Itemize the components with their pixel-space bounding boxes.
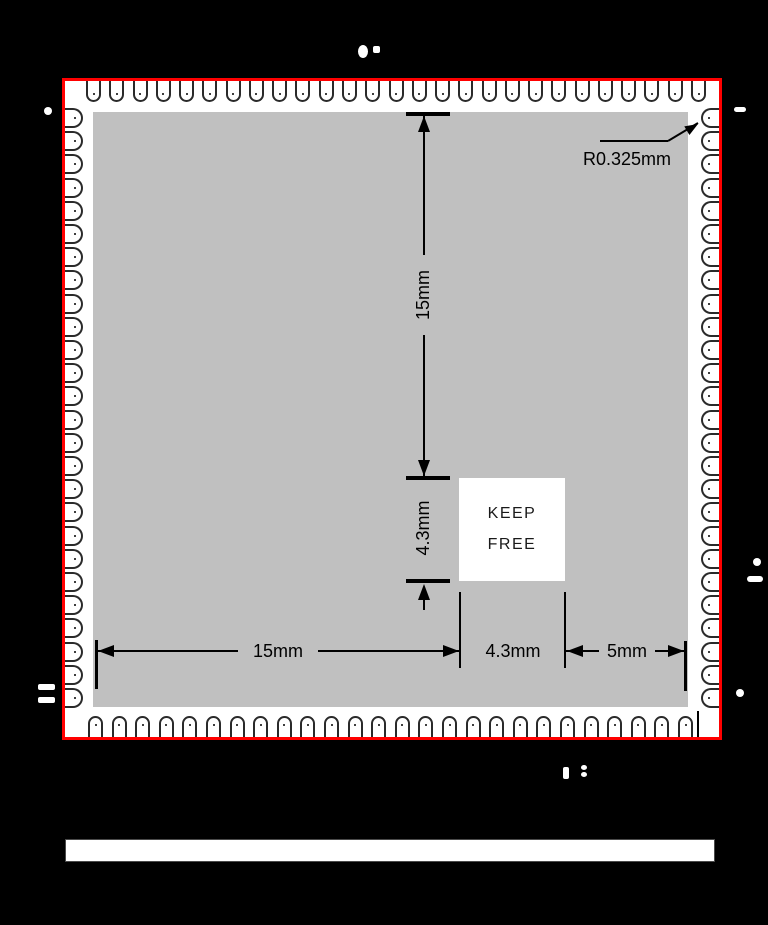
dim-h5-right-tick: [684, 641, 687, 691]
keep-free-zone: KEEP FREE: [459, 478, 565, 581]
footer-blank-bar: [65, 839, 715, 862]
pad-center-dot: [74, 279, 76, 281]
castellated-pad: [701, 108, 719, 128]
pad-center-dot: [708, 372, 710, 374]
pad-center-dot: [74, 488, 76, 490]
castellated-pad: [253, 716, 268, 737]
castellated-pad: [701, 502, 719, 522]
castellated-pad: [435, 81, 450, 102]
stray-mark: [747, 576, 763, 582]
pad-center-dot: [139, 93, 141, 95]
dim-h43-label: 4.3mm: [473, 641, 553, 661]
pad-center-dot: [708, 488, 710, 490]
castellated-pad: [389, 81, 404, 102]
castellated-pad: [202, 81, 217, 102]
castellated-pad: [277, 716, 292, 737]
pad-center-dot: [395, 93, 397, 95]
castellated-pad: [701, 386, 719, 406]
pad-center-dot: [74, 395, 76, 397]
castellated-pad: [560, 716, 575, 737]
castellated-pad: [412, 81, 427, 102]
pad-center-dot: [74, 651, 76, 653]
pad-center-dot: [74, 256, 76, 258]
castellated-pad: [701, 340, 719, 360]
castellated-pad: [319, 81, 334, 102]
castellated-pad: [528, 81, 543, 102]
castellated-pad: [365, 81, 380, 102]
pad-center-dot: [74, 604, 76, 606]
castellated-pad: [182, 716, 197, 737]
castellated-pad: [112, 716, 127, 737]
pad-center-dot: [708, 279, 710, 281]
pad-center-dot: [279, 93, 281, 95]
castellated-pad: [701, 224, 719, 244]
castellated-pad: [551, 81, 566, 102]
castellated-pad: [65, 178, 83, 198]
castellated-pad: [65, 294, 83, 314]
pad-center-dot: [74, 303, 76, 305]
pad-center-dot: [449, 724, 451, 726]
castellated-pad: [230, 716, 245, 737]
castellated-pad: [272, 81, 287, 102]
castellated-pad: [513, 716, 528, 737]
pad-center-dot: [708, 163, 710, 165]
castellated-pad: [701, 572, 719, 592]
pad-center-dot: [74, 349, 76, 351]
pad-center-dot: [708, 511, 710, 513]
pad-center-dot: [74, 581, 76, 583]
pad-center-dot: [604, 93, 606, 95]
castellated-pad: [348, 716, 363, 737]
castellated-pad: [701, 433, 719, 453]
dim-v15-arrow-down: [418, 460, 430, 476]
pad-center-dot: [708, 349, 710, 351]
pad-radius-label: R0.325mm: [583, 149, 671, 170]
castellated-pad: [295, 81, 310, 102]
pad-center-dot: [116, 93, 118, 95]
dim-h15-arrow-left: [98, 645, 114, 657]
pad-center-dot: [232, 93, 234, 95]
pad-center-dot: [74, 210, 76, 212]
pad-center-dot: [708, 558, 710, 560]
pad-center-dot: [93, 93, 95, 95]
pad-center-dot: [74, 372, 76, 374]
pad-center-dot: [74, 117, 76, 119]
pad-center-dot: [628, 93, 630, 95]
pad-center-dot: [378, 724, 380, 726]
pad-center-dot: [74, 465, 76, 467]
pad-center-dot: [74, 326, 76, 328]
pad-center-dot: [186, 93, 188, 95]
pad-center-dot: [708, 140, 710, 142]
pad-center-dot: [425, 724, 427, 726]
pad-center-dot: [708, 674, 710, 676]
pad-center-dot: [708, 535, 710, 537]
castellated-pad: [371, 716, 386, 737]
pad-center-dot: [331, 724, 333, 726]
pad-center-dot: [708, 627, 710, 629]
castellated-pad: [159, 716, 174, 737]
castellated-pad: [65, 433, 83, 453]
radius-leader-line: [600, 140, 668, 142]
dim-h5-label: 5mm: [599, 641, 655, 661]
castellated-pad: [701, 317, 719, 337]
castellated-pad: [88, 716, 103, 737]
pad-center-dot: [118, 724, 120, 726]
pad-center-dot: [307, 724, 309, 726]
castellated-pad: [701, 688, 719, 708]
pad-center-dot: [511, 93, 513, 95]
dim-h15-arrow-right: [443, 645, 459, 657]
castellated-pad: [65, 549, 83, 569]
stray-mark: [38, 697, 55, 703]
castellated-pad: [86, 81, 101, 102]
pad-center-dot: [708, 187, 710, 189]
pad-center-dot: [708, 395, 710, 397]
dim-h15-label: 15mm: [238, 641, 318, 661]
castellated-pad: [466, 716, 481, 737]
pad-center-dot: [74, 187, 76, 189]
pad-center-dot: [260, 724, 262, 726]
pad-center-dot: [74, 674, 76, 676]
stray-mark: [581, 765, 587, 770]
pad-center-dot: [142, 724, 144, 726]
pad-center-dot: [74, 697, 76, 699]
pad-center-dot: [372, 93, 374, 95]
pad-center-dot: [708, 117, 710, 119]
castellated-pad: [65, 642, 83, 662]
dim-h5-arrow-right: [668, 645, 684, 657]
pcb-body: [93, 112, 688, 707]
pad-center-dot: [708, 465, 710, 467]
pad-center-dot: [401, 724, 403, 726]
pad-center-dot: [708, 604, 710, 606]
pad-center-dot: [708, 651, 710, 653]
stray-mark: [753, 558, 761, 566]
pad-center-dot: [74, 140, 76, 142]
castellated-pad: [631, 716, 646, 737]
pad-center-dot: [472, 724, 474, 726]
castellated-pad: [701, 154, 719, 174]
castellated-pad: [300, 716, 315, 737]
pad-center-dot: [637, 724, 639, 726]
castellated-pad: [482, 81, 497, 102]
extension-line-right: [564, 592, 566, 668]
castellated-pad: [701, 410, 719, 430]
castellated-pad: [668, 81, 683, 102]
stray-mark: [736, 689, 744, 697]
castellated-pad: [505, 81, 520, 102]
castellated-pad: [701, 247, 719, 267]
stray-mark: [581, 772, 587, 777]
pad-center-dot: [558, 93, 560, 95]
pad-center-dot: [74, 419, 76, 421]
castellated-pad: [701, 642, 719, 662]
stray-mark: [358, 45, 368, 58]
pad-center-dot: [581, 93, 583, 95]
pad-center-dot: [708, 233, 710, 235]
pad-center-dot: [708, 210, 710, 212]
pad-center-dot: [488, 93, 490, 95]
extension-line-left: [459, 592, 461, 668]
castellated-pad: [678, 716, 693, 737]
pad-center-dot: [255, 93, 257, 95]
castellated-pad: [701, 618, 719, 638]
pad-center-dot: [74, 233, 76, 235]
pad-center-dot: [543, 724, 545, 726]
pad-center-dot: [708, 326, 710, 328]
castellated-pad: [701, 595, 719, 615]
pad-center-dot: [325, 93, 327, 95]
castellated-pad: [691, 81, 706, 102]
pad-center-dot: [567, 724, 569, 726]
dim-h5-arrow-left: [567, 645, 583, 657]
castellated-pad: [489, 716, 504, 737]
pad-center-dot: [519, 724, 521, 726]
pad-center-dot: [162, 93, 164, 95]
pad-center-dot: [348, 93, 350, 95]
castellated-pad: [701, 131, 719, 151]
pad-center-dot: [496, 724, 498, 726]
stray-mark: [734, 107, 746, 112]
dim-v43-arrow-up: [418, 584, 430, 600]
castellated-pad: [701, 363, 719, 383]
pad-center-dot: [74, 511, 76, 513]
castellated-pad: [65, 201, 83, 221]
pad-center-dot: [708, 697, 710, 699]
pad-center-dot: [74, 627, 76, 629]
pad-center-dot: [302, 93, 304, 95]
pad-center-dot: [651, 93, 653, 95]
pad-center-dot: [708, 581, 710, 583]
castellated-pad: [324, 716, 339, 737]
pad-center-dot: [708, 256, 710, 258]
castellated-pad: [179, 81, 194, 102]
keep-free-label-line1: KEEP: [488, 505, 537, 523]
castellated-pad: [654, 716, 669, 737]
castellated-pad: [644, 81, 659, 102]
castellated-pad: [701, 526, 719, 546]
edge-extension-segment: [697, 711, 699, 737]
castellated-pad: [701, 549, 719, 569]
castellated-pad: [598, 81, 613, 102]
castellated-pad: [442, 716, 457, 737]
castellated-pad: [133, 81, 148, 102]
castellated-pad: [65, 317, 83, 337]
pad-center-dot: [354, 724, 356, 726]
pad-center-dot: [213, 724, 215, 726]
pad-center-dot: [590, 724, 592, 726]
castellated-pad: [575, 81, 590, 102]
pad-center-dot: [236, 724, 238, 726]
dim-v43-label: 4.3mm: [413, 488, 433, 568]
pad-center-dot: [95, 724, 97, 726]
dim-v15-label: 15mm: [413, 255, 433, 335]
castellated-pad: [701, 479, 719, 499]
pad-center-dot: [209, 93, 211, 95]
pad-center-dot: [708, 303, 710, 305]
pad-center-dot: [442, 93, 444, 95]
castellated-pad: [395, 716, 410, 737]
castellated-pad: [701, 270, 719, 290]
castellated-pad: [701, 665, 719, 685]
dim-v15-arrow-up: [418, 116, 430, 132]
castellated-pad: [206, 716, 221, 737]
castellated-pad: [65, 526, 83, 546]
dim-v15-bottom-tick: [406, 476, 450, 480]
pad-center-dot: [465, 93, 467, 95]
pad-center-dot: [674, 93, 676, 95]
datasheet-footprint-diagram: KEEP FREE 15mm 4.3mm 15mm 4.3mm 5mm R0.3…: [0, 0, 768, 925]
castellated-pad: [65, 410, 83, 430]
castellated-pad: [701, 294, 719, 314]
castellated-pad: [584, 716, 599, 737]
castellated-pad: [156, 81, 171, 102]
castellated-pad: [226, 81, 241, 102]
castellated-pad: [458, 81, 473, 102]
pad-center-dot: [708, 419, 710, 421]
stray-mark: [44, 107, 52, 115]
castellated-pad: [621, 81, 636, 102]
pad-center-dot: [661, 724, 663, 726]
dim-v43-bottom-tick: [406, 579, 450, 583]
castellated-pad: [65, 665, 83, 685]
dim-v43-stub: [423, 599, 425, 610]
castellated-pad: [701, 201, 719, 221]
stray-mark: [38, 684, 55, 690]
stray-mark: [373, 46, 380, 53]
pad-center-dot: [74, 163, 76, 165]
pad-center-dot: [698, 93, 700, 95]
pad-center-dot: [535, 93, 537, 95]
stray-mark: [563, 767, 569, 779]
pad-center-dot: [165, 724, 167, 726]
pad-center-dot: [189, 724, 191, 726]
castellated-pad: [342, 81, 357, 102]
castellated-pad: [607, 716, 622, 737]
castellated-pad: [135, 716, 150, 737]
pad-center-dot: [74, 535, 76, 537]
pad-center-dot: [74, 558, 76, 560]
castellated-pad: [701, 178, 719, 198]
castellated-pad: [109, 81, 124, 102]
castellated-pad: [249, 81, 264, 102]
castellated-pad: [701, 456, 719, 476]
castellated-pad: [536, 716, 551, 737]
pad-center-dot: [685, 724, 687, 726]
pad-center-dot: [283, 724, 285, 726]
pad-center-dot: [418, 93, 420, 95]
keep-free-label-line2: FREE: [488, 536, 537, 554]
pad-center-dot: [708, 442, 710, 444]
castellated-pad: [418, 716, 433, 737]
pad-center-dot: [74, 442, 76, 444]
pad-center-dot: [614, 724, 616, 726]
